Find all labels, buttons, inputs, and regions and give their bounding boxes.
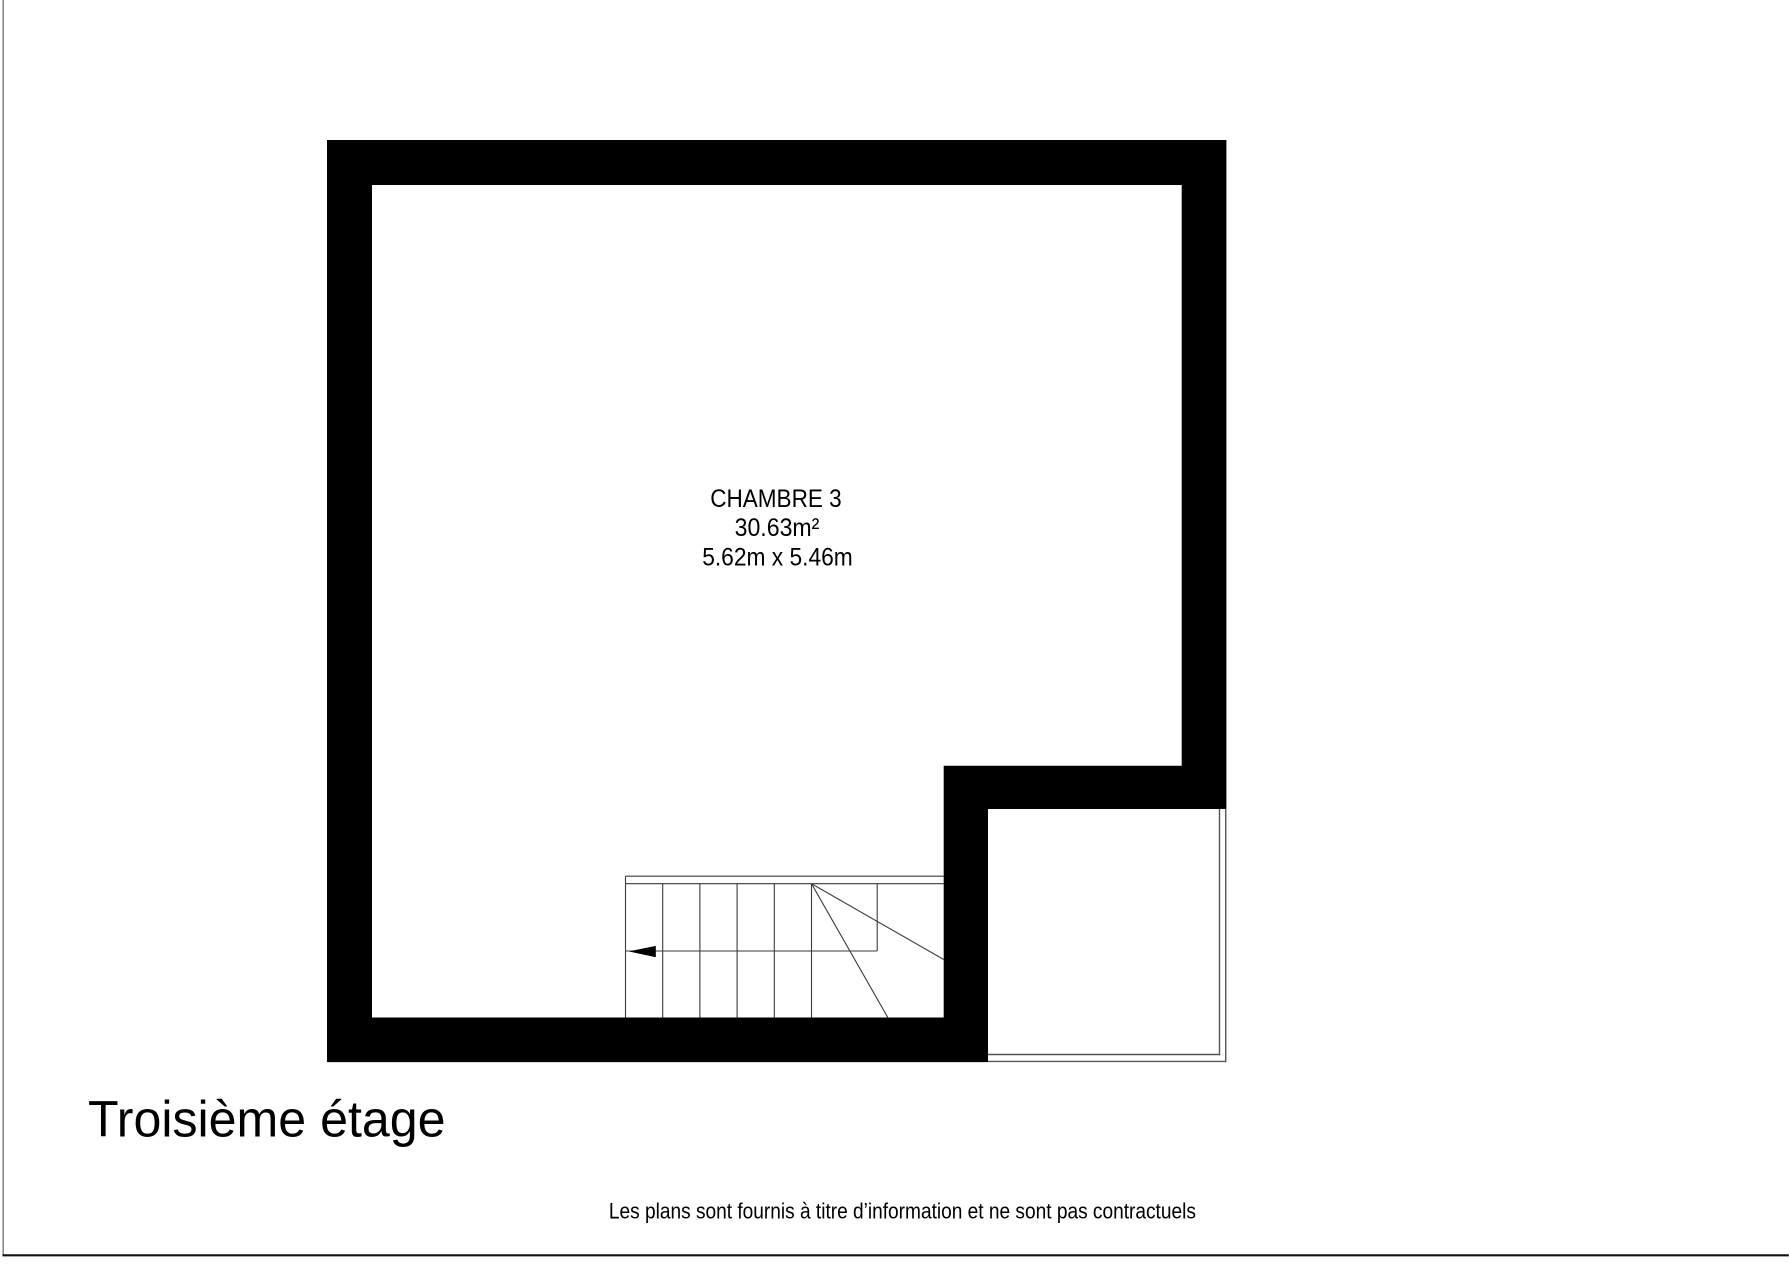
- svg-text:Les plans sont fournis à titre: Les plans sont fournis à titre d’informa…: [609, 1199, 1196, 1224]
- svg-text:Troisième étage: Troisième étage: [88, 1091, 446, 1148]
- svg-text:5.62m x 5.46m: 5.62m x 5.46m: [702, 543, 853, 571]
- svg-text:30.63m²: 30.63m²: [735, 514, 820, 542]
- svg-text:CHAMBRE 3: CHAMBRE 3: [710, 485, 842, 513]
